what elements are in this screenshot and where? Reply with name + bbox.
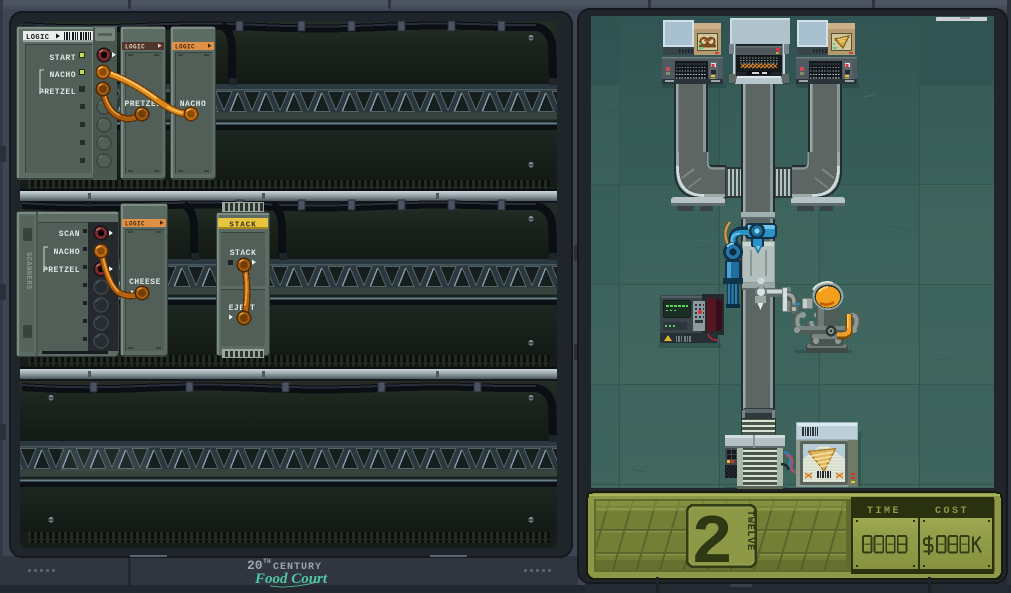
svg-text:NACHO: NACHO (53, 248, 80, 257)
svg-text:SCANNERS: SCANNERS (24, 252, 32, 290)
svg-text:2: 2 (691, 505, 733, 584)
svg-text:LOGIC: LOGIC (175, 44, 195, 51)
svg-text:CHEESE: CHEESE (129, 278, 161, 287)
svg-text:LOGIC: LOGIC (125, 221, 145, 228)
svg-text:COST: COST (935, 506, 969, 517)
svg-text:TWELVE: TWELVE (744, 510, 756, 551)
svg-text:START: START (49, 54, 76, 63)
svg-text:Food Court: Food Court (254, 571, 328, 587)
svg-text:LOGIC: LOGIC (125, 44, 145, 51)
svg-text:LOGIC: LOGIC (26, 34, 50, 42)
svg-text:NACHO: NACHO (49, 71, 76, 80)
svg-text:TH: TH (263, 558, 271, 565)
svg-text:TIME: TIME (867, 506, 901, 517)
svg-text:SCAN: SCAN (59, 230, 80, 239)
svg-text:STACK: STACK (230, 249, 257, 258)
svg-text:PRETZEL: PRETZEL (43, 266, 80, 275)
svg-text:PRETZEL: PRETZEL (39, 88, 76, 97)
svg-text:STACK: STACK (229, 222, 257, 230)
